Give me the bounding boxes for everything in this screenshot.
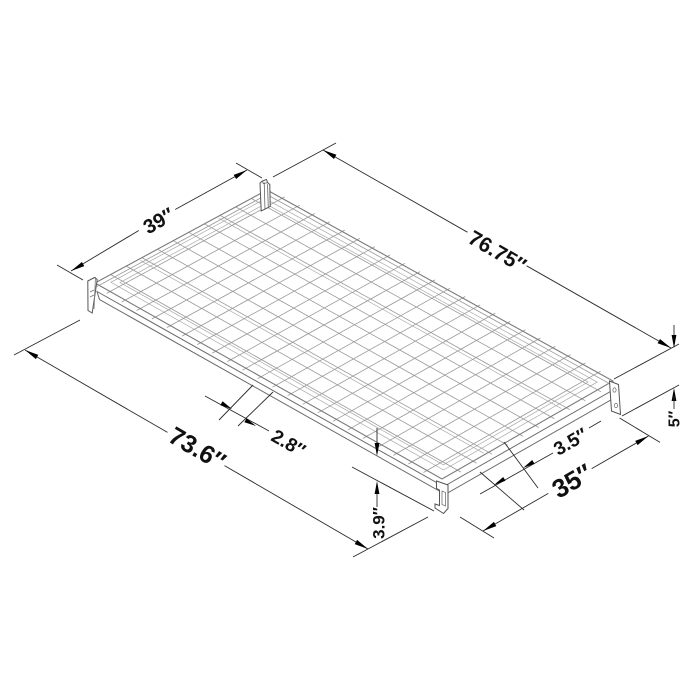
- svg-text:5″: 5″: [667, 410, 684, 427]
- svg-text:3.9″: 3.9″: [370, 507, 389, 539]
